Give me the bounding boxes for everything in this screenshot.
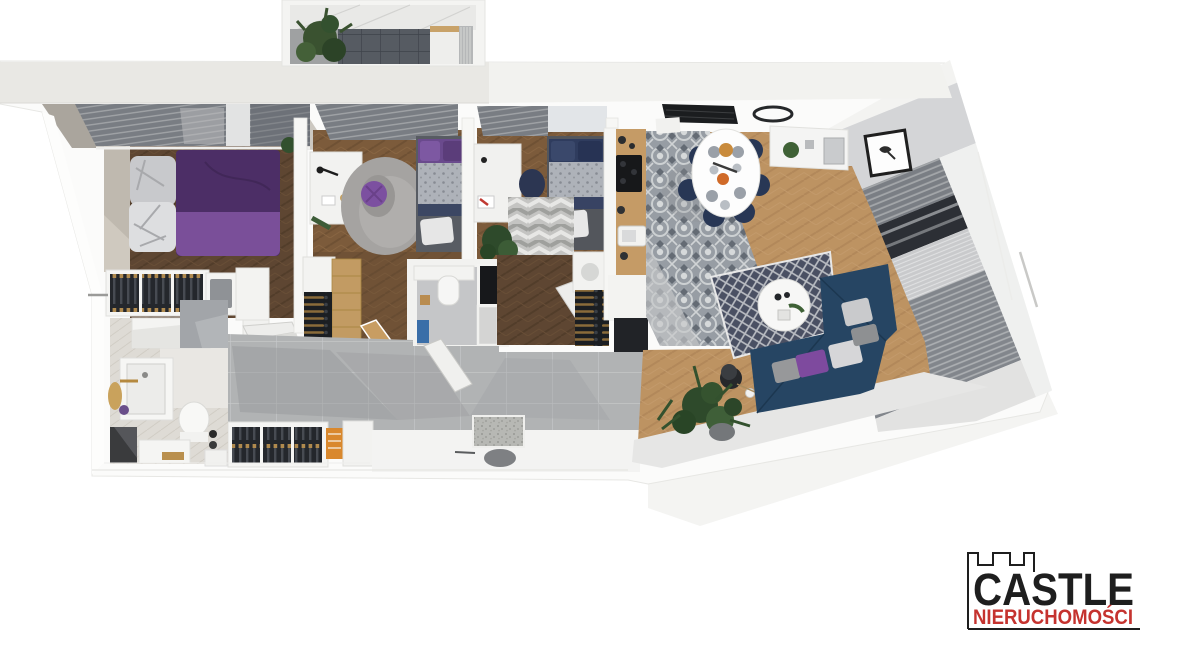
svg-text:NIERUCHOMOŚCI: NIERUCHOMOŚCI (973, 605, 1133, 629)
